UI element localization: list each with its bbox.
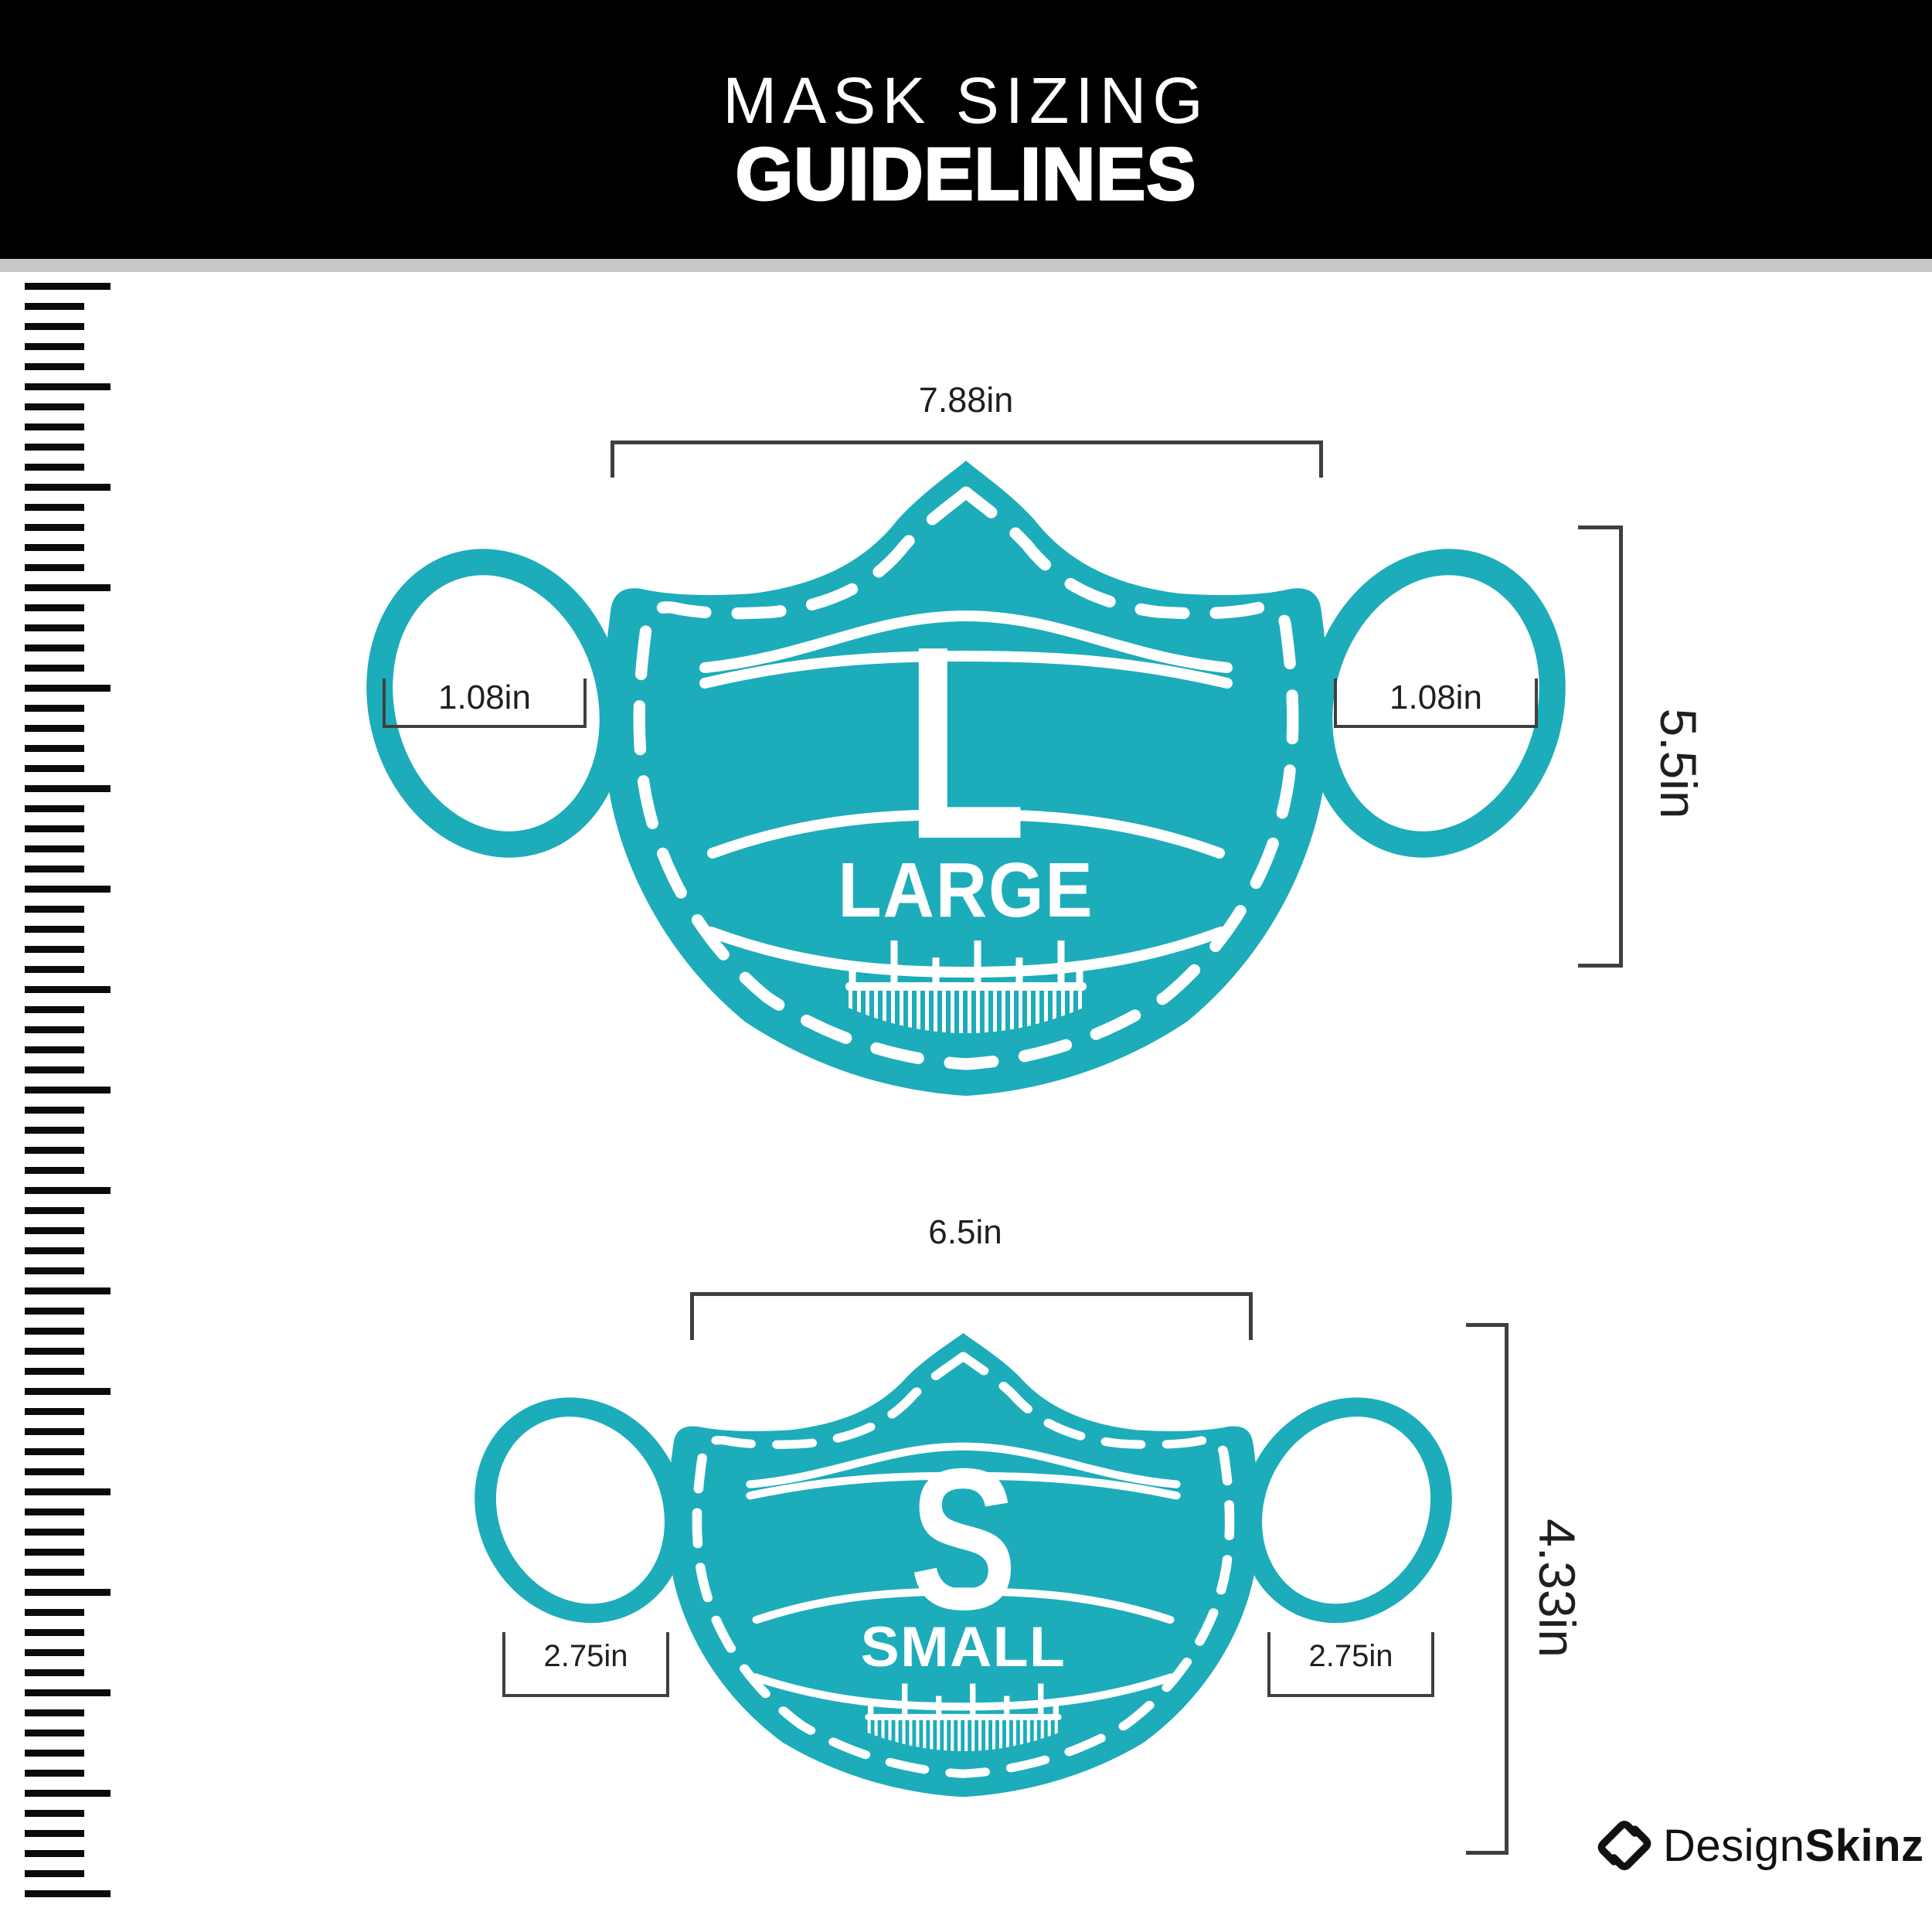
large-ear-right-label: 1.08in: [1389, 679, 1482, 718]
header: MASK SIZING GUIDELINES: [0, 0, 1932, 259]
small-mask-illustration: S SMALL: [474, 1331, 1452, 1804]
brand-logo: DesignSkinz: [1594, 1815, 1924, 1876]
small-ear-right-box: 2.75in: [1267, 1632, 1434, 1697]
designskinz-logo-icon: [1594, 1815, 1655, 1876]
large-mask-illustration: L LARGE: [366, 457, 1566, 1105]
large-height-bracket: [1578, 526, 1623, 968]
small-height-label: 4.33in: [1528, 1519, 1587, 1658]
small-height-bracket: [1466, 1323, 1509, 1855]
large-size-name: LARGE: [838, 847, 1094, 933]
page-title-line2: GUIDELINES: [0, 138, 1932, 212]
small-ear-right-label: 2.75in: [1309, 1638, 1393, 1674]
ruler-icon: [25, 283, 111, 1900]
brand-name-regular: Design: [1663, 1821, 1805, 1871]
small-width-label: 6.5in: [865, 1213, 1066, 1252]
small-ear-left-label: 2.75in: [544, 1638, 628, 1674]
brand-name: DesignSkinz: [1663, 1820, 1924, 1872]
large-ear-right-box: 1.08in: [1334, 679, 1538, 728]
large-ear-left-box: 1.08in: [383, 679, 587, 728]
brand-name-bold: Skinz: [1805, 1821, 1924, 1871]
large-ear-left-label: 1.08in: [438, 679, 531, 718]
mask-sizing-infographic: MASK SIZING GUIDELINES: [0, 0, 1932, 1932]
page-title-line1: MASK SIZING: [0, 68, 1932, 133]
small-size-name: SMALL: [861, 1615, 1066, 1679]
large-width-label: 7.88in: [866, 380, 1066, 420]
large-height-label: 5.5in: [1649, 708, 1708, 818]
header-divider-bar: [0, 259, 1932, 272]
small-ear-left-box: 2.75in: [502, 1632, 669, 1697]
